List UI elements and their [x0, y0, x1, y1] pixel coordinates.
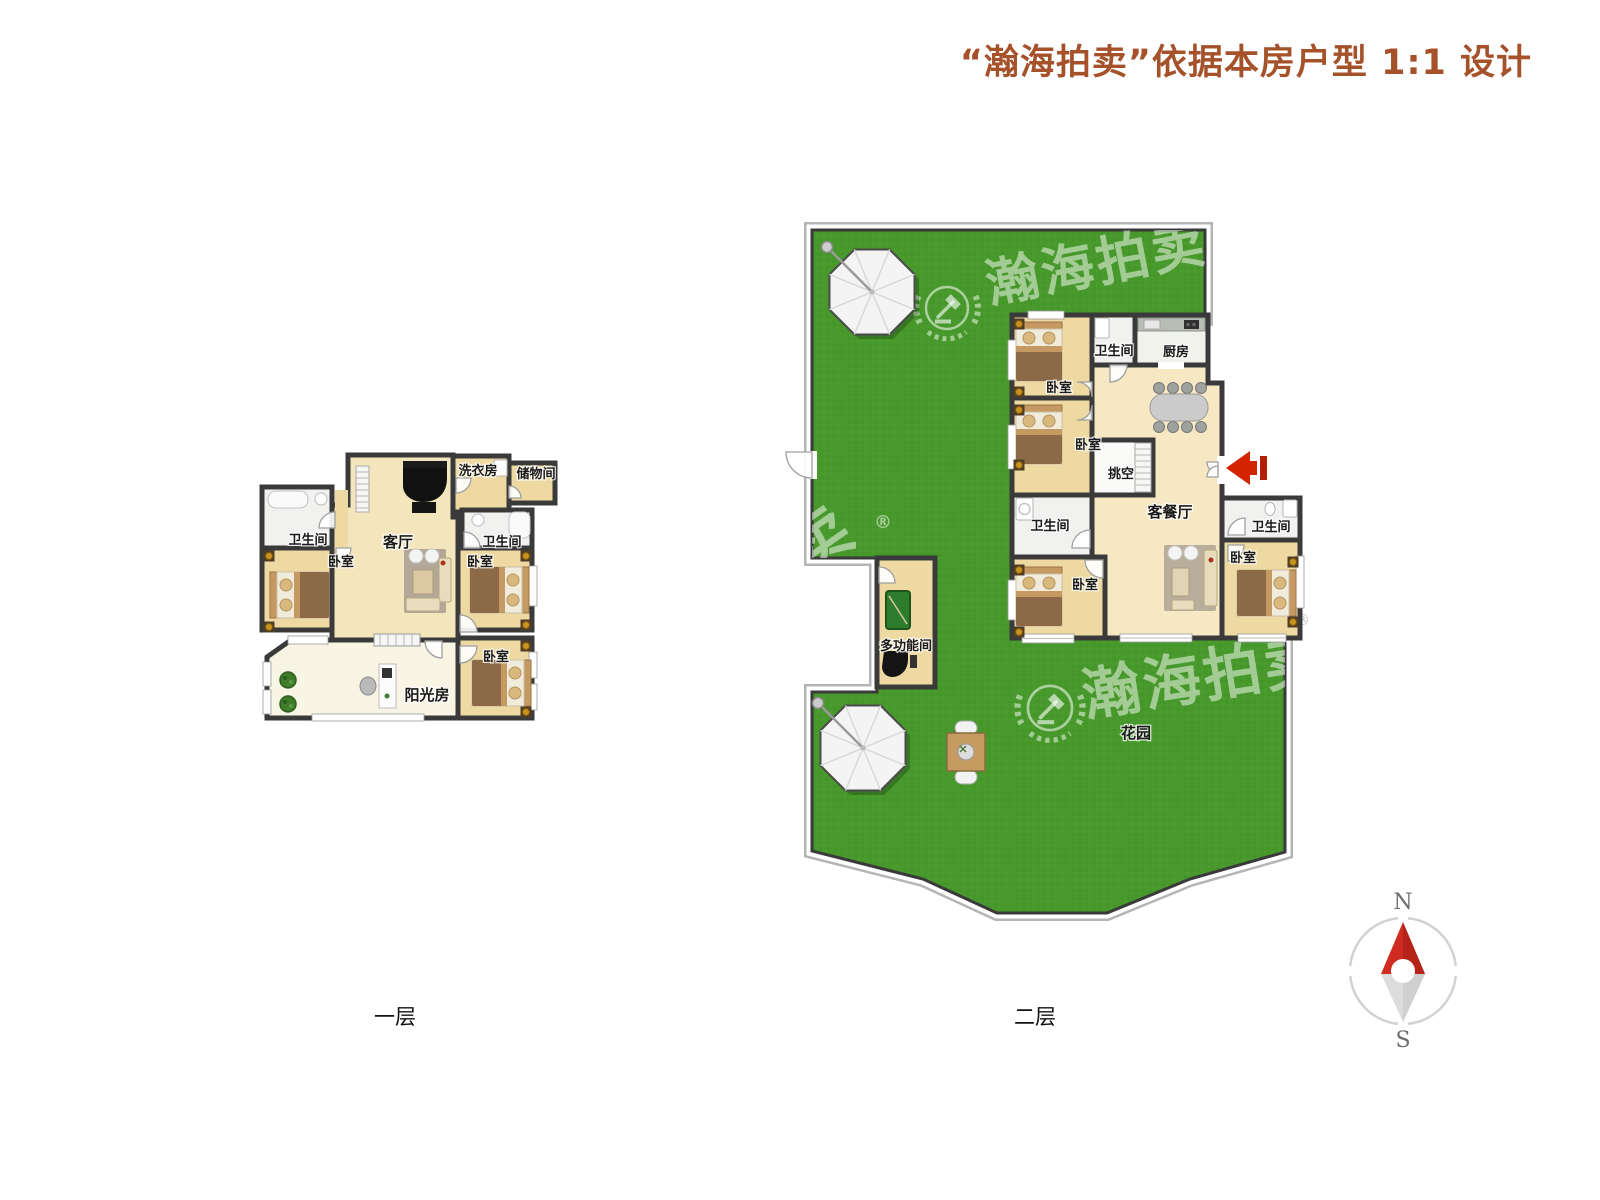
sunroom-steps	[374, 634, 420, 646]
room-label-f2-bedroom-top: 卧室	[1046, 380, 1072, 396]
entrance-arrow-icon	[1226, 451, 1267, 485]
brand-watermark-diagonal: 瀚海拍卖	[607, 491, 869, 705]
living-stairs	[356, 466, 369, 512]
room-label-f1-bath-left: 卫生间	[288, 532, 327, 548]
bath-mid-washer	[1016, 498, 1033, 520]
room-label-f1-storage: 储物间	[515, 466, 555, 482]
bath-top-fixture	[1095, 318, 1109, 338]
room-label-f2-garden: 花园	[1121, 724, 1151, 742]
caption-floor1: 一层	[374, 1005, 416, 1029]
void-stairs	[1135, 443, 1151, 492]
floorplan-page: “瀚海拍卖”依据本房户型 1:1 设计	[0, 0, 1600, 1200]
floor2-plan: 瀚海拍卖 瀚海拍卖 瀚海拍卖 ® ®	[607, 213, 1329, 913]
compass: N S	[1345, 890, 1461, 1053]
room-label-f2-living-dining: 客餐厅	[1146, 503, 1192, 521]
floor1-plan: 瀚海拍卖	[262, 416, 556, 721]
compass-south-label: S	[1395, 1028, 1410, 1053]
floorplan-canvas: 瀚海拍卖 瀚海拍卖 瀚海拍卖 ® ®	[0, 0, 1600, 1200]
room-label-f1-laundry: 洗衣房	[458, 463, 497, 479]
sofa-set-f2	[1164, 545, 1217, 611]
compass-north-label: N	[1393, 890, 1412, 915]
caption-floor2: 二层	[1014, 1005, 1056, 1029]
room-label-f1-bedroom-left: 卧室	[328, 554, 354, 570]
sofa-set-f1	[404, 549, 451, 613]
room-label-f2-bath-right: 卫生间	[1251, 519, 1290, 535]
room-label-f1-living: 客厅	[382, 533, 413, 551]
room-label-f1-bath-right: 卫生间	[482, 534, 521, 550]
room-label-f1-bedroom-right: 卧室	[467, 554, 493, 570]
room-label-f2-multi-function: 多功能间	[880, 638, 932, 654]
kitchen-counter	[1138, 318, 1205, 331]
room-label-f1-sunroom: 阳光房	[404, 686, 449, 704]
room-label-f2-void: 挑空	[1108, 466, 1134, 482]
room-label-f1-bedroom-bottom: 卧室	[483, 649, 509, 665]
garden-gate-door	[786, 452, 812, 478]
room-label-f2-bedroom-bottom: 卧室	[1072, 577, 1098, 593]
tv-cabinet	[412, 502, 436, 513]
registered-mark-garden: ®	[874, 512, 895, 533]
room-label-f2-bedroom-mid: 卧室	[1075, 437, 1101, 453]
room-label-f2-bath-mid: 卫生间	[1030, 518, 1069, 534]
room-label-f2-bedroom-right: 卧室	[1230, 550, 1256, 566]
room-label-f2-kitchen: 厨房	[1163, 344, 1189, 360]
room-label-f2-bath-top: 卫生间	[1094, 343, 1133, 359]
